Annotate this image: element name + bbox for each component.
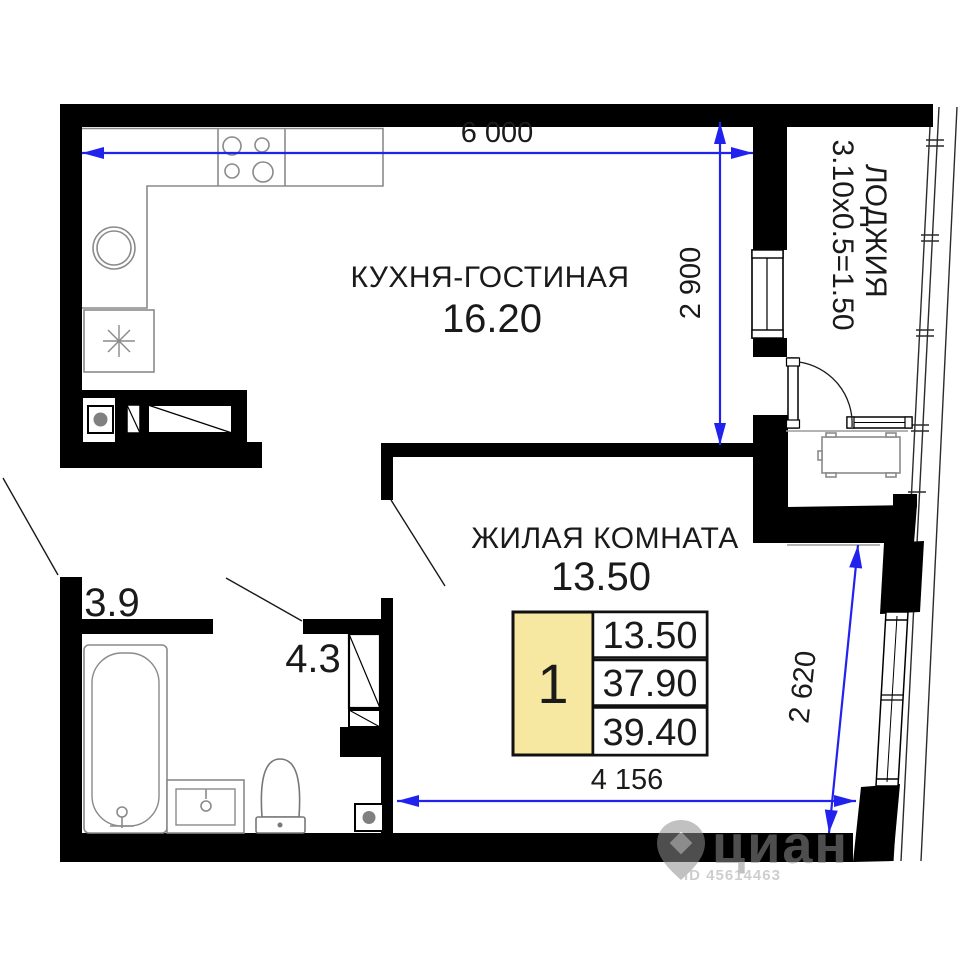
bathtub-inner <box>92 653 159 826</box>
entrance-door-swing <box>3 478 58 575</box>
floorplan-svg: 6 000 2 900 4 156 2 620 КУХНЯ-ГОСТИНАЯ 1… <box>0 0 960 960</box>
table-tab <box>826 433 836 437</box>
toilet-bowl <box>261 759 299 817</box>
walls <box>60 104 933 862</box>
facade-edge-line <box>921 107 957 861</box>
arrowhead-right <box>834 795 856 807</box>
loggia-door-hinge-tick <box>787 358 800 366</box>
toilet-button <box>278 823 283 828</box>
bathroom-door-swing <box>226 578 302 621</box>
loggia-room-window <box>752 250 783 338</box>
sink-outer <box>93 227 135 269</box>
table-tab <box>886 433 896 437</box>
stamp-area-without-loggia: 37.90 <box>602 663 697 705</box>
dim-kitchen-depth-label: 2 900 <box>675 247 707 320</box>
watermark-brand: циан <box>712 815 849 875</box>
window-end-tick <box>905 417 912 428</box>
facade-lines <box>893 107 957 861</box>
wall-left-lower <box>60 577 82 862</box>
window-end-tick <box>752 330 783 338</box>
living-room-label: ЖИЛАЯ КОМНАТА <box>471 522 739 555</box>
dimension-lines <box>82 122 858 833</box>
loggia-door-leaf <box>788 358 798 428</box>
arrowhead-right <box>731 147 753 159</box>
fridge-snowflake-icon <box>103 325 135 357</box>
arrowhead-left <box>397 795 419 807</box>
living-room-facade-window <box>876 612 908 786</box>
burner <box>253 162 273 182</box>
burner <box>225 164 239 178</box>
wall-loggia-left-upper <box>753 104 787 250</box>
floorplan-canvas: 6 000 2 900 4 156 2 620 КУХНЯ-ГОСТИНАЯ 1… <box>0 0 960 960</box>
arrowhead-left <box>82 147 104 159</box>
loggia-door-hinge-tick <box>787 420 800 428</box>
loggia-door <box>787 358 853 428</box>
wall-facade-upper <box>880 541 924 614</box>
wall-left-upper <box>60 104 82 468</box>
wall-niche-block <box>340 727 381 757</box>
loggia-name: ЛОДЖИЯ <box>859 164 892 298</box>
stove-burners-icon <box>223 137 273 182</box>
wall-hall-living <box>381 598 393 833</box>
arrowhead-up-slanted <box>849 545 862 569</box>
toilet-icon <box>256 759 305 833</box>
facade-glazing-outer-line <box>901 107 939 861</box>
dimension-arrowheads <box>82 122 862 833</box>
loggia-door-arc <box>799 362 852 427</box>
stamp-living-area: 13.50 <box>602 615 697 657</box>
table-tab <box>886 473 896 477</box>
bathtub-icon <box>84 645 167 833</box>
window-end-tick <box>847 417 854 428</box>
stamp-total-area: 39.40 <box>602 712 697 754</box>
living-room-area: 13.50 <box>551 555 651 599</box>
table-tab-left <box>818 451 822 460</box>
stamp-rooms-count: 1 <box>537 652 568 715</box>
loggia-size-formula: 3.10х0.5=1.50 <box>826 139 859 330</box>
wall-loggia-bottom <box>787 505 917 543</box>
wall-bathroom-top-b <box>303 619 393 634</box>
living-door-swing <box>391 500 445 586</box>
kitchen-living-area: 16.20 <box>442 297 542 341</box>
loggia-fixtures <box>818 433 900 477</box>
window-end-tick <box>752 250 783 258</box>
apartment-stamp: 1 13.50 37.90 39.40 <box>513 612 707 755</box>
washer-drum <box>363 811 376 824</box>
wall-facade-corner <box>853 784 900 862</box>
hall-door-leaf-panel <box>349 634 380 727</box>
loggia-label: ЛОДЖИЯ 3.10х0.5=1.50 <box>826 139 892 330</box>
dim-room-width-label: 4 156 <box>591 764 664 796</box>
wall-door-stub <box>381 457 393 500</box>
fridge-icon <box>84 310 154 372</box>
dim-room-depth-label: 2 620 <box>783 649 822 725</box>
watermark-id: ID 45614463 <box>684 867 781 884</box>
bathroom-washer-icon <box>355 804 383 831</box>
dim-room-depth-line <box>829 545 858 833</box>
wall-loggia-step <box>893 494 917 507</box>
wall-loggia-jamb <box>753 338 787 357</box>
kitchen-fixtures <box>82 128 383 372</box>
arrowhead-down <box>714 423 726 445</box>
kitchen-sink-icon <box>93 227 135 269</box>
bathroom-sink-icon <box>167 780 244 833</box>
hallway-area: 4.3 <box>285 637 341 681</box>
wall-loggia-left-lower <box>753 415 788 543</box>
watermark: циан ID 45614463 <box>657 815 849 884</box>
loggia-table <box>822 437 900 473</box>
table-tab <box>826 473 836 477</box>
sink-inner <box>97 231 131 265</box>
dim-top-label: 6 000 <box>461 117 534 149</box>
wall-kitchen-living-divider <box>381 443 753 457</box>
washer-drum-icon <box>94 413 108 427</box>
burner <box>255 138 269 152</box>
kitchen-living-label: КУХНЯ-ГОСТИНАЯ <box>351 261 630 294</box>
wall-kitchen-block-bar <box>60 442 262 468</box>
loggia-partition-window <box>847 417 912 428</box>
bathroom-area: 3.9 <box>84 581 140 625</box>
